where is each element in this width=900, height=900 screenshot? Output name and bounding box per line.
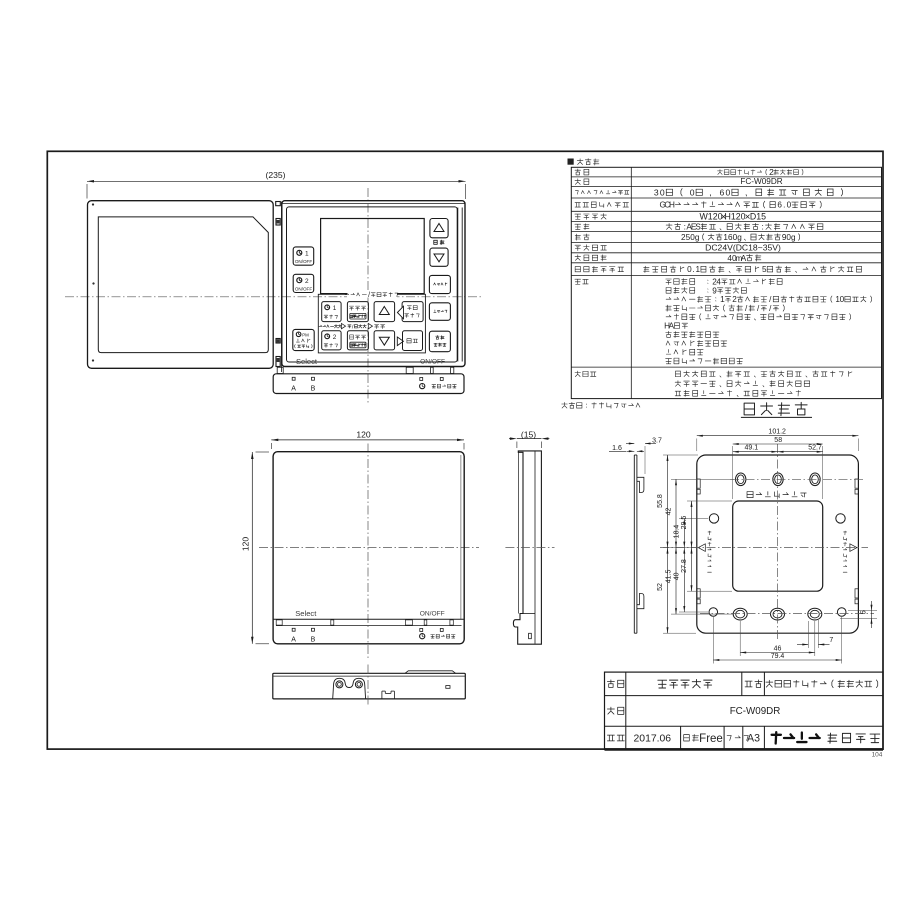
svg-text:120: 120 [241,537,251,552]
svg-text:18.4: 18.4 [674,525,681,539]
svg-text:9: 9 [712,286,717,295]
svg-text:41.5: 41.5 [665,569,672,583]
svg-text:Select: Select [295,609,317,618]
svg-text:24: 24 [712,277,721,286]
svg-text:1.6: 1.6 [612,445,622,452]
svg-text:29.5: 29.5 [681,516,688,530]
svg-text:Select: Select [296,357,318,366]
svg-text:FC-W09DR: FC-W09DR [730,706,781,717]
svg-text:49.1: 49.1 [744,445,758,452]
svg-text:ON/OFF: ON/OFF [295,259,313,264]
svg-text:ON/OFF: ON/OFF [295,287,313,292]
svg-text:5: 5 [860,610,867,614]
svg-text:52.7: 52.7 [808,445,822,452]
svg-text:(15): (15) [521,429,536,439]
svg-text:104: 104 [872,752,883,759]
svg-text:ON/OFF: ON/OFF [420,358,445,365]
svg-text:42: 42 [665,508,672,516]
svg-text:46: 46 [774,645,782,652]
svg-text:79.4: 79.4 [771,653,785,660]
svg-text:2: 2 [305,278,309,285]
svg-text:A3: A3 [747,732,760,744]
svg-text:40: 40 [674,572,681,580]
svg-text:A: A [291,385,296,392]
svg-text:DC24V(DC18~35V): DC24V(DC18~35V) [705,242,781,252]
svg-text:2017.06: 2017.06 [634,733,672,744]
svg-text:101.2: 101.2 [768,428,786,435]
svg-text:B: B [311,636,316,643]
svg-text:A: A [291,636,296,643]
svg-text:D15: D15 [750,211,766,221]
svg-text:55.8: 55.8 [657,494,664,508]
svg-text:7: 7 [829,637,833,644]
svg-text:52: 52 [657,583,664,591]
svg-text:27.8: 27.8 [681,559,688,573]
svg-text:40mA: 40mA [727,254,746,263]
svg-text:HA: HA [664,322,674,331]
svg-text:H120: H120 [724,211,745,221]
svg-text:Free: Free [699,733,723,745]
svg-text:B: B [311,385,316,392]
svg-text:W120: W120 [700,211,723,221]
svg-text:/: / [368,292,370,299]
svg-text:58: 58 [774,437,782,444]
svg-text:2: 2 [769,167,774,177]
svg-text:2: 2 [333,334,337,341]
svg-text:(235): (235) [265,170,285,180]
svg-text:FC-W09DR: FC-W09DR [740,177,782,186]
svg-text:PM: PM [302,333,309,338]
svg-text:ON/OFF: ON/OFF [420,611,445,618]
svg-text:1: 1 [305,251,309,258]
svg-text:1: 1 [333,305,337,312]
svg-text:120: 120 [356,429,371,439]
